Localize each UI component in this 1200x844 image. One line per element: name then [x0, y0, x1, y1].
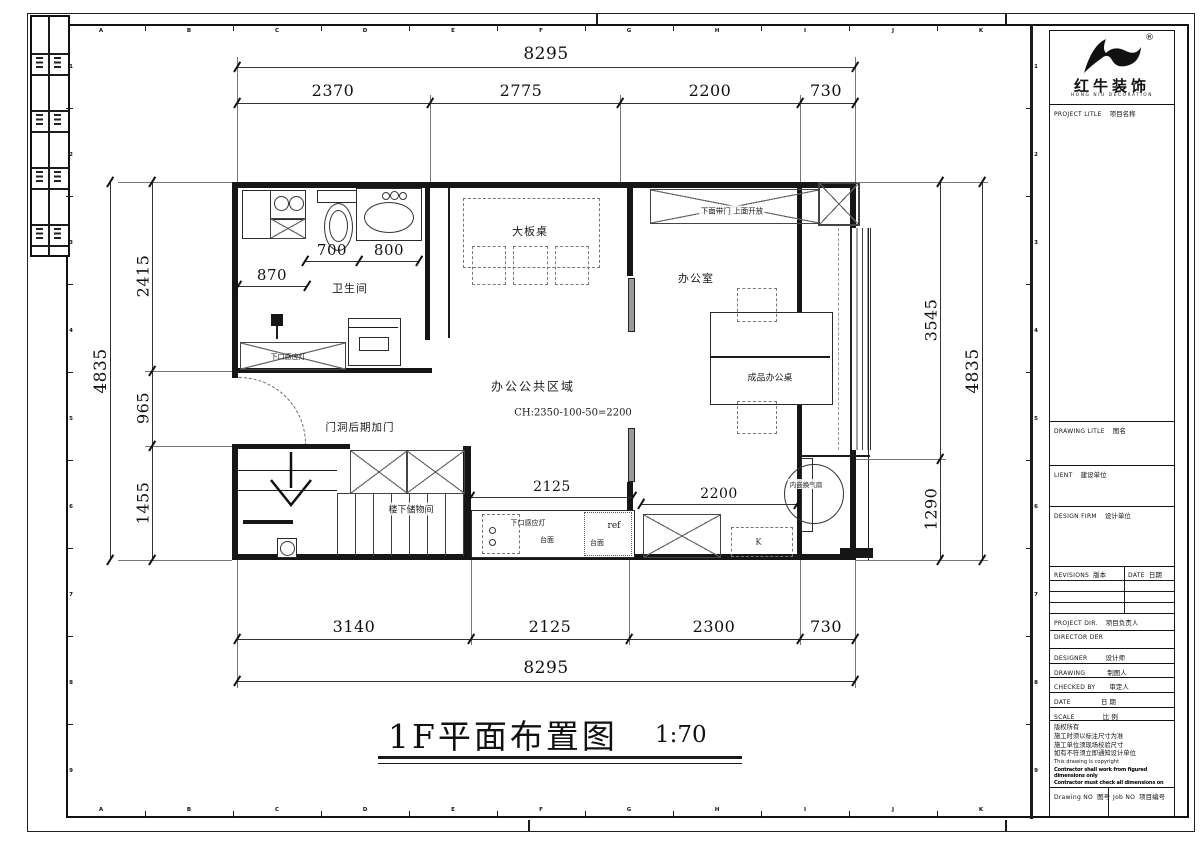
ext-line [118, 560, 232, 561]
bull-logo-icon [1078, 33, 1146, 75]
ruler-number-left: 7 [69, 592, 73, 598]
copyright-line: 施工时须以标注尺寸为准 [1054, 733, 1171, 742]
ruler-letter-top: J [892, 28, 894, 34]
ruler-number-right: 2 [1034, 152, 1038, 158]
fridge-box [584, 512, 632, 556]
ruler-tick [1026, 460, 1033, 461]
ext-line [620, 95, 621, 182]
ruler-letter-bottom: E [451, 807, 455, 813]
ruler-number-right: 6 [1034, 504, 1038, 510]
fold-strip-line [32, 53, 68, 55]
ruler-letter-bottom: F [539, 807, 543, 813]
ruler-tick [66, 636, 73, 637]
ruler-letter-bottom: C [275, 807, 279, 813]
fold-mark [596, 13, 598, 24]
dim-text: 2200 [689, 81, 732, 100]
copyright-line: 版权所有 [1054, 724, 1171, 733]
toilet-bowl-inner [329, 210, 348, 242]
registered-mark: ® [1145, 33, 1154, 43]
dim-text: 2415 [134, 255, 153, 298]
ruler-tick [409, 24, 410, 31]
dim-text: 700 [317, 241, 347, 259]
label-big-table: 大板桌 [512, 223, 548, 239]
wall-stairs-top [232, 444, 350, 449]
dim-text: 3140 [333, 617, 376, 636]
counter-dot [489, 527, 496, 534]
room-label-storage: 楼下储物间 [386, 503, 435, 516]
chair [472, 246, 506, 285]
label-kitchen: K [756, 538, 763, 547]
field-label-zh: 项目负责人 [1106, 617, 1139, 627]
project-title-box: PROJECT LITLE项目名称 [1049, 104, 1175, 423]
drawing-number-box: Drawing NO图号 Job NO项目编号 [1049, 787, 1175, 817]
sliding-door-leaf [628, 278, 635, 332]
wall-right-lower [850, 450, 856, 560]
ruler-letter-top: K [979, 28, 983, 34]
ruler-number-right: 7 [1034, 592, 1038, 598]
dim-text: 1455 [134, 482, 153, 525]
dim-text: 8295 [523, 658, 568, 678]
ruler-tick [585, 24, 586, 31]
field-label-zh: 设计师 [1106, 652, 1126, 662]
revisions-row-line [1050, 591, 1174, 592]
ruler-number-right: 1 [1034, 64, 1038, 70]
label-sensor-light-counter: 下口感应灯 [511, 518, 546, 528]
ruler-letter-top: D [363, 28, 368, 34]
fold-mark [1005, 820, 1007, 831]
field-label-en: PROJECT DIR. [1054, 620, 1098, 627]
wall-duct-line [448, 188, 450, 338]
fold-strip-line [32, 131, 68, 133]
ruler-number-right: 3 [1034, 240, 1038, 246]
storage-cabinet-x [350, 450, 408, 494]
ruler-letter-top: B [187, 28, 191, 34]
revisions-row-line [1050, 580, 1174, 581]
sliding-door-leaf [628, 428, 635, 482]
dim-text: 2200 [700, 486, 738, 502]
ruler-letter-bottom: K [979, 807, 983, 813]
field-label-zh: 图号 [1097, 791, 1110, 801]
fold-glyph [36, 57, 43, 70]
ruler-number-left: 1 [69, 64, 73, 70]
office-desk [710, 312, 833, 405]
room-label-bathroom: 卫生间 [332, 280, 368, 296]
ruler-letter-top: F [539, 28, 543, 34]
dim-line [641, 504, 797, 505]
dim-line [237, 639, 855, 640]
field-label-en: DRAWING [1054, 670, 1085, 677]
ruler-letter-bottom: A [99, 807, 103, 813]
ruler-tick [761, 24, 762, 31]
revisions-box: REVISIONS版本 DATE日期 [1049, 566, 1175, 615]
dim-text: 2370 [312, 81, 355, 100]
field-label-en: CHECKED BY [1054, 684, 1095, 691]
washer-circle [289, 196, 304, 211]
field-label-zh: 日 期 [1101, 696, 1116, 706]
sheet-inner-border [66, 24, 1189, 818]
title-underline-thin [378, 763, 742, 764]
drawing-scale: 1:70 [655, 722, 707, 748]
label-ceiling-height: CH:2350-100-50=2200 [514, 408, 632, 419]
cabinet-x-mark [270, 218, 306, 239]
ext-line [237, 560, 238, 688]
ruler-letter-bottom: B [187, 807, 191, 813]
chair [737, 401, 777, 434]
ruler-tick [1026, 548, 1033, 549]
dim-line [305, 261, 420, 262]
field-label-zh: 项目编号 [1139, 791, 1165, 801]
wall-small-room [243, 520, 293, 524]
exterior-line [868, 228, 869, 560]
wall-left-upper [232, 182, 238, 378]
label-countertop: 台面 [590, 538, 604, 548]
washing-machine-door [359, 337, 389, 351]
brand-subtitle: HONG NIU DECORATION [1050, 93, 1174, 98]
wall-left-lower [232, 444, 238, 560]
ruler-letter-bottom: D [363, 807, 368, 813]
field-label-en: LIENT [1054, 472, 1073, 479]
ext-line [856, 459, 946, 460]
field-label-zh: 项目名称 [1110, 108, 1136, 118]
dim-text: 870 [257, 266, 287, 284]
sink-basin [364, 202, 414, 233]
washing-machine-line [349, 327, 398, 328]
ruler-number-left: 3 [69, 240, 73, 246]
ext-line [856, 560, 988, 561]
dim-text: 2125 [529, 617, 572, 636]
ruler-tick [321, 811, 322, 818]
ruler-tick [585, 811, 586, 818]
dim-text: 2775 [500, 81, 543, 100]
wall-top [232, 182, 856, 188]
ruler-tick [937, 24, 938, 31]
ruler-letter-top: C [275, 28, 279, 34]
label-fan: 内嵌换气扇 [788, 479, 825, 489]
revisions-row-line [1050, 602, 1174, 603]
floor-drain-circle [280, 541, 295, 556]
ruler-tick [1026, 284, 1033, 285]
ruler-letter-top: I [804, 28, 806, 34]
field-label-en: PROJECT LITLE [1054, 111, 1102, 118]
ruler-number-left: 2 [69, 152, 73, 158]
field-label-en: DIRECTOR DER [1054, 634, 1103, 641]
room-label-public-area: 办公公共区域 [491, 378, 575, 395]
faucet-dot [390, 191, 399, 200]
fold-mark [528, 820, 530, 831]
ruler-tick [66, 724, 73, 725]
title-underline [378, 756, 742, 759]
fold-strip-line [32, 167, 68, 169]
fold-glyph [36, 228, 43, 241]
counter-dot [489, 539, 496, 546]
dim-text: 2125 [533, 479, 571, 495]
ruler-tick [849, 811, 850, 818]
field-label-en: Drawing NO [1054, 794, 1093, 801]
label-sensor-light-bath: 下口感应灯 [271, 352, 306, 362]
field-label-en: DATE [1128, 572, 1145, 579]
dim-line [237, 681, 855, 682]
kitchen-cabinet-x [643, 514, 721, 558]
wall-partition-upper [627, 188, 633, 276]
faucet-dot [399, 192, 407, 200]
chair [513, 246, 548, 285]
ext-line [145, 371, 232, 372]
ext-line [800, 560, 801, 645]
ruler-tick [673, 24, 674, 31]
field-label-zh: 制图人 [1107, 667, 1127, 677]
logo-box: ® 红牛装饰 HONG NIU DECORATION [1049, 30, 1175, 106]
ext-line [856, 182, 988, 183]
ruler-tick [1026, 196, 1033, 197]
ruler-letter-top: G [627, 28, 632, 34]
field-label-zh: 版本 [1093, 569, 1106, 579]
ruler-tick [233, 811, 234, 818]
ruler-number-right: 5 [1034, 416, 1038, 422]
client-box: LIENT建设单位 [1049, 465, 1175, 508]
field-label-en: DESIGN FIRM [1054, 513, 1097, 520]
field-label-zh: 设计单位 [1105, 510, 1131, 520]
ruler-tick [66, 284, 73, 285]
fold-strip-line [32, 245, 68, 247]
ext-line [629, 560, 630, 645]
faucet-dot [382, 192, 390, 200]
field-label-en: DESIGNER [1054, 655, 1088, 662]
ruler-tick [937, 811, 938, 818]
ext-line [118, 182, 232, 183]
copyright-bold-line: Contractor shall work from figured dimen… [1054, 767, 1171, 781]
ruler-tick [761, 811, 762, 818]
fan-circle [784, 464, 844, 524]
ruler-tick [497, 811, 498, 818]
fold-glyph [54, 171, 61, 184]
copyright-box: 版权所有 施工时须以标注尺寸为准 施工单位须现场校验尺寸 如有不符须立即通知设计… [1049, 720, 1175, 789]
chair [555, 246, 589, 285]
fold-glyph [54, 228, 61, 241]
ruler-number-left: 9 [69, 768, 73, 774]
field-label-en: REVISIONS [1054, 572, 1089, 579]
dim-text: 730 [810, 81, 842, 100]
ruler-number-left: 8 [69, 680, 73, 686]
dim-text: 2300 [693, 617, 736, 636]
curtain-dashed-line [838, 228, 839, 450]
field-label-en: Job NO [1113, 794, 1135, 801]
dim-line [237, 103, 855, 104]
field-label-zh: 审定人 [1109, 681, 1129, 691]
ext-line [471, 560, 472, 645]
drawing-title-box: DRAWING LITLE图名 [1049, 421, 1175, 467]
dim-text: 730 [810, 617, 842, 636]
fold-glyph [36, 114, 43, 127]
ruler-number-left: 6 [69, 504, 73, 510]
dim-line [471, 497, 633, 498]
drawing-sheet: 8295 2370 2775 2200 730 3140 2125 2300 7… [0, 0, 1200, 844]
title-block: ® 红牛装饰 HONG NIU DECORATION PROJECT LITLE… [1033, 25, 1191, 819]
ruler-tick [145, 811, 146, 818]
ruler-tick [145, 24, 146, 31]
dim-line [238, 286, 308, 287]
field-label-en: DATE [1054, 699, 1071, 706]
ext-line [855, 57, 856, 182]
ext-line [430, 95, 431, 182]
ruler-number-left: 5 [69, 416, 73, 422]
label-fridge: ref [608, 521, 621, 531]
field-label-zh: 日期 [1149, 569, 1162, 579]
ruler-tick [1026, 724, 1033, 725]
ruler-number-right: 9 [1034, 768, 1038, 774]
field-label-zh: 建设单位 [1081, 469, 1107, 479]
fold-glyph [54, 57, 61, 70]
stair-down-arrow [268, 450, 314, 508]
washer-circle [274, 196, 289, 211]
ext-line [800, 95, 801, 182]
ruler-tick [673, 811, 674, 818]
fold-mark [1005, 13, 1007, 24]
copyright-line: 如有不符须立即通知设计单位 [1054, 750, 1171, 759]
dim-text: 4835 [91, 348, 111, 393]
ext-line [145, 446, 232, 447]
ruler-number-right: 4 [1034, 328, 1038, 334]
ruler-tick [66, 108, 73, 109]
fold-strip-line [32, 110, 68, 112]
dim-text: 4835 [963, 348, 983, 393]
ruler-number-left: 4 [69, 328, 73, 334]
ext-line [855, 560, 856, 688]
ruler-tick [321, 24, 322, 31]
field-label-en: DRAWING LITLE [1054, 428, 1105, 435]
fold-strip-line [32, 74, 68, 76]
ruler-letter-bottom: J [892, 807, 894, 813]
window-sill-line [798, 455, 870, 457]
design-firm-box: DESIGN FIRM设计单位 [1049, 506, 1175, 568]
light-fixture-stem [276, 326, 278, 339]
dim-text: 1290 [922, 488, 941, 531]
ruler-letter-bottom: G [627, 807, 632, 813]
label-door-note: 门洞后期加门 [326, 420, 395, 435]
light-fixture [271, 314, 283, 326]
ruler-letter-top: H [715, 28, 720, 34]
dim-text: 800 [374, 241, 404, 259]
storage-cabinet-x [406, 450, 465, 494]
ruler-tick [497, 24, 498, 31]
ruler-tick [1026, 108, 1033, 109]
wall-bathroom-vertical [425, 188, 430, 340]
toilet-tank [317, 190, 358, 203]
ruler-tick [409, 811, 410, 818]
dim-text: 8295 [523, 44, 568, 64]
ruler-tick [1026, 636, 1033, 637]
ruler-tick [849, 24, 850, 31]
dim-text: 3545 [922, 299, 941, 342]
ruler-tick [233, 24, 234, 31]
chair [737, 288, 777, 322]
label-countertop: 台面 [540, 535, 554, 545]
ruler-tick [66, 372, 73, 373]
copyright-line-en: This drawing is copyright [1054, 759, 1171, 767]
dim-line [237, 67, 855, 68]
ruler-tick [66, 196, 73, 197]
fold-marks-strip [30, 15, 70, 257]
room-label-office: 办公室 [678, 270, 714, 286]
label-cabinet-note: 下面带门 上面开放 [699, 206, 765, 217]
director-box: DIRECTOR DER [1049, 630, 1175, 650]
fold-glyph [36, 171, 43, 184]
ruler-letter-bottom: I [804, 807, 806, 813]
office-desk-divider [711, 356, 830, 358]
ext-line [237, 57, 238, 182]
label-office-desk: 成品办公桌 [747, 371, 792, 384]
ruler-letter-top: E [451, 28, 455, 34]
ruler-tick [66, 460, 73, 461]
ruler-number-right: 8 [1034, 680, 1038, 686]
field-label-zh: 图名 [1113, 425, 1126, 435]
ruler-tick [66, 548, 73, 549]
fold-strip-line [32, 224, 68, 226]
dim-text: 965 [134, 392, 153, 424]
ruler-letter-top: A [99, 28, 103, 34]
fold-glyph [54, 114, 61, 127]
drawing-title: 1F平面布置图 [388, 710, 618, 758]
column-x [818, 182, 860, 226]
ruler-tick [1026, 372, 1033, 373]
fold-strip-line [32, 188, 68, 190]
ruler-letter-bottom: H [715, 807, 720, 813]
